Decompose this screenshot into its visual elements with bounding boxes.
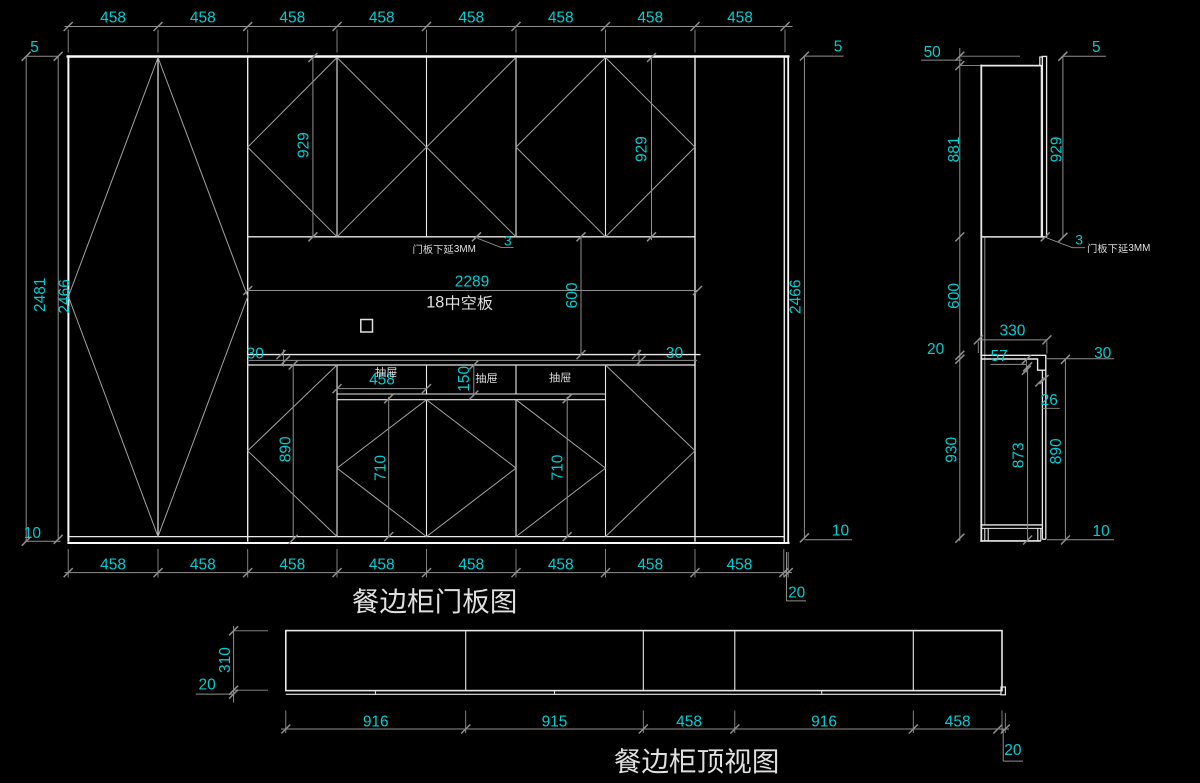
svg-text:458: 458 <box>279 557 305 574</box>
svg-text:2466: 2466 <box>788 280 805 314</box>
svg-text:3: 3 <box>504 233 512 249</box>
svg-text:890: 890 <box>1048 438 1065 464</box>
svg-text:458: 458 <box>279 10 305 27</box>
svg-text:710: 710 <box>549 454 566 480</box>
svg-text:26: 26 <box>1041 392 1058 409</box>
svg-text:30: 30 <box>666 345 684 362</box>
svg-text:600: 600 <box>946 283 963 309</box>
svg-text:30: 30 <box>1094 345 1112 362</box>
svg-text:20: 20 <box>927 341 945 358</box>
svg-text:710: 710 <box>373 455 390 481</box>
svg-text:20: 20 <box>1004 742 1022 759</box>
svg-text:5: 5 <box>1092 39 1101 56</box>
svg-text:458: 458 <box>945 714 971 731</box>
svg-text:458: 458 <box>637 10 663 27</box>
svg-text:873: 873 <box>1010 442 1027 468</box>
svg-text:3MM: 3MM <box>1128 243 1150 254</box>
svg-text:150: 150 <box>456 365 473 391</box>
svg-text:458: 458 <box>637 557 663 574</box>
svg-text:458: 458 <box>100 557 126 574</box>
svg-text:5: 5 <box>30 39 39 56</box>
svg-text:600: 600 <box>564 282 581 308</box>
svg-text:916: 916 <box>363 714 389 731</box>
svg-text:929: 929 <box>1048 136 1065 162</box>
svg-text:458: 458 <box>676 714 702 731</box>
svg-text:330: 330 <box>999 323 1025 340</box>
svg-text:30: 30 <box>247 345 265 362</box>
svg-text:3: 3 <box>1075 232 1083 248</box>
svg-text:458: 458 <box>190 10 216 27</box>
svg-text:915: 915 <box>542 714 568 731</box>
svg-text:2289: 2289 <box>455 274 489 291</box>
svg-text:458: 458 <box>190 557 216 574</box>
svg-text:458: 458 <box>458 557 484 574</box>
svg-text:3MM: 3MM <box>454 244 476 255</box>
svg-text:458: 458 <box>369 371 395 388</box>
svg-text:458: 458 <box>369 557 395 574</box>
svg-text:458: 458 <box>548 10 574 27</box>
svg-text:916: 916 <box>811 714 837 731</box>
svg-text:458: 458 <box>100 10 126 27</box>
svg-text:2481: 2481 <box>32 278 49 312</box>
svg-text:18: 18 <box>426 294 444 312</box>
svg-text:458: 458 <box>369 10 395 27</box>
svg-text:929: 929 <box>296 132 313 158</box>
svg-text:2466: 2466 <box>56 279 73 313</box>
svg-text:57: 57 <box>991 348 1008 365</box>
svg-text:929: 929 <box>633 136 650 162</box>
svg-text:50: 50 <box>924 44 942 61</box>
svg-text:5: 5 <box>834 39 843 56</box>
svg-text:458: 458 <box>727 10 753 27</box>
svg-text:10: 10 <box>1092 523 1110 540</box>
svg-text:458: 458 <box>458 10 484 27</box>
svg-text:10: 10 <box>832 523 850 540</box>
svg-text:930: 930 <box>944 436 961 462</box>
svg-text:20: 20 <box>198 677 216 694</box>
svg-text:20: 20 <box>788 585 806 602</box>
svg-text:890: 890 <box>278 436 295 462</box>
svg-text:881: 881 <box>946 136 963 162</box>
svg-text:10: 10 <box>24 525 42 542</box>
svg-text:310: 310 <box>217 647 234 673</box>
svg-text:458: 458 <box>548 557 574 574</box>
svg-text:458: 458 <box>726 557 752 574</box>
